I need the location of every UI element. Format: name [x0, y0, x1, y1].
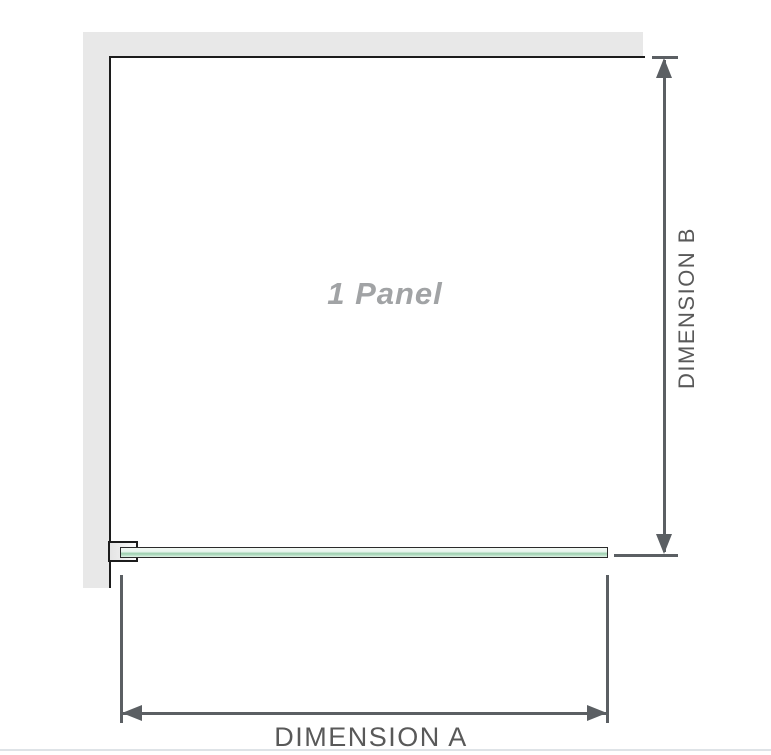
dimension-a-arrow-left-icon: [122, 705, 142, 721]
dimension-b-cap-bottom: [614, 554, 678, 557]
dimension-a-line: [122, 712, 607, 715]
dimension-a-extension-right: [606, 575, 609, 723]
wall-left-band: [83, 32, 109, 588]
panel-outline-top: [109, 56, 645, 58]
dimension-b-arrow-up-icon: [656, 58, 672, 78]
dimension-a-label: DIMENSION A: [171, 722, 571, 753]
dimension-b-line: [663, 60, 666, 552]
shower-panel-diagram: 1 Panel DIMENSION B DIMENSION A: [0, 0, 771, 755]
panel-outline-left: [109, 56, 111, 541]
wall-top-band: [83, 32, 643, 57]
dimension-a-extension-left: [120, 575, 123, 723]
glass-panel: [120, 547, 608, 558]
dimension-b-label: DIMENSION B: [673, 158, 701, 458]
dimension-b-arrow-down-icon: [656, 534, 672, 554]
dimension-a-arrow-right-icon: [587, 705, 607, 721]
panel-outline-left-lower: [109, 562, 111, 588]
panel-label: 1 Panel: [240, 276, 530, 312]
